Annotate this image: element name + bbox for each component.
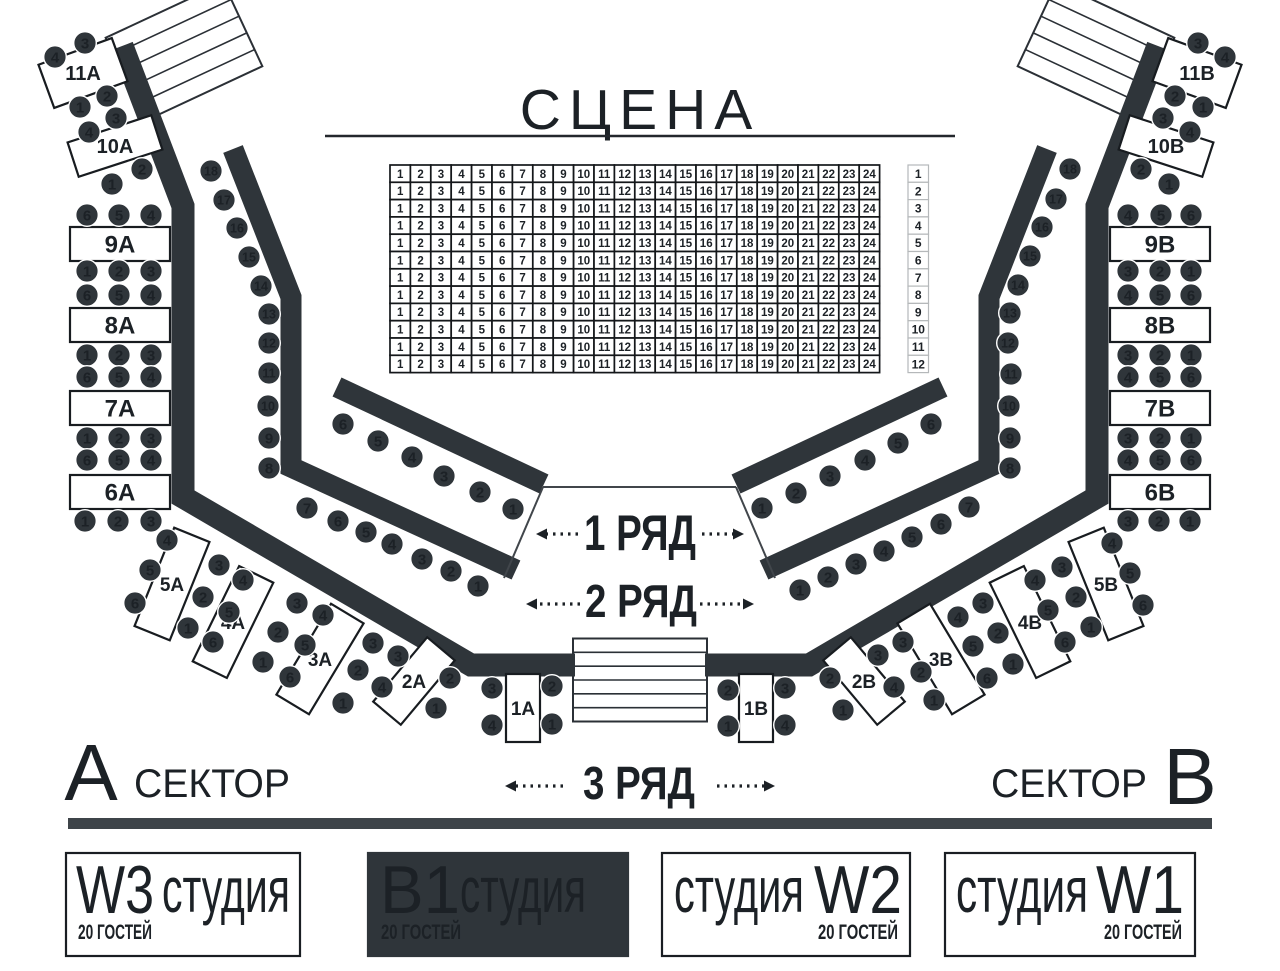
seat-row1_right-4[interactable]: 4 bbox=[854, 449, 877, 472]
stage-grid-seat-number: 13 bbox=[639, 186, 652, 198]
seat-number: 1 bbox=[474, 579, 482, 596]
seat-11B-3[interactable]: 3 bbox=[1187, 32, 1210, 55]
studio-W3[interactable]: W3студия20 ГОСТЕЙ bbox=[66, 852, 300, 956]
seat-number: 3 bbox=[440, 469, 448, 486]
seat-3B-1[interactable]: 1 bbox=[923, 689, 946, 712]
stage-grid-seat-number: 8 bbox=[540, 255, 547, 267]
seat-number: 18 bbox=[204, 165, 218, 179]
seat-aisle_left-18[interactable]: 18 bbox=[200, 160, 223, 183]
block-11A[interactable]: 11A4312 bbox=[38, 32, 127, 119]
stage-grid-seat-number: 1 bbox=[397, 273, 404, 285]
seat-aisle_left-9[interactable]: 9 bbox=[258, 427, 281, 450]
block-5B[interactable]: 5B321456 bbox=[1051, 528, 1155, 641]
seat-number: 4 bbox=[51, 50, 60, 67]
stage-grid-seat-number: 23 bbox=[843, 238, 856, 250]
seat-number: 2 bbox=[917, 665, 925, 682]
seat-7A-1[interactable]: 1 bbox=[76, 427, 99, 450]
seat-2B-1[interactable]: 1 bbox=[832, 699, 855, 722]
seat-10B-4[interactable]: 4 bbox=[1179, 121, 1202, 144]
block-label: 6B bbox=[1145, 480, 1176, 507]
seat-10A-3[interactable]: 3 bbox=[105, 107, 128, 130]
seat-3B-2[interactable]: 2 bbox=[910, 661, 933, 684]
row-marker: 1 РЯД bbox=[536, 505, 744, 561]
stage-grid-seat-number: 14 bbox=[659, 221, 672, 233]
block-8B[interactable]: 8B456321 bbox=[1110, 284, 1210, 367]
seat-number: 17 bbox=[1049, 193, 1063, 207]
seat-5B-2[interactable]: 2 bbox=[1065, 586, 1088, 609]
stage-grid-seat-number: 9 bbox=[560, 169, 566, 181]
seat-3B-6[interactable]: 6 bbox=[976, 667, 999, 690]
seat-8A-5[interactable]: 5 bbox=[108, 284, 131, 307]
block-6A[interactable]: 6A654123 bbox=[70, 449, 170, 533]
seat-4B-6[interactable]: 6 bbox=[1054, 631, 1077, 654]
block-9A[interactable]: 9A654123 bbox=[70, 204, 170, 283]
seat-number: 6 bbox=[1187, 288, 1195, 305]
arrow-head-icon bbox=[764, 781, 775, 792]
stage-grid-seat-number: 15 bbox=[679, 359, 692, 371]
seat-row2_right-7[interactable]: 7 bbox=[958, 496, 981, 519]
stage-grid-seat-number: 16 bbox=[700, 273, 713, 285]
seat-4A-4[interactable]: 4 bbox=[232, 569, 255, 592]
seat-row1_left-6[interactable]: 6 bbox=[332, 413, 355, 436]
seat-5A-5[interactable]: 5 bbox=[139, 559, 162, 582]
block-6B[interactable]: 6B456321 bbox=[1110, 449, 1210, 533]
seat-row2_left-3[interactable]: 3 bbox=[411, 548, 434, 571]
seat-number: 1 bbox=[339, 696, 347, 713]
seat-6B-3[interactable]: 3 bbox=[1117, 510, 1140, 533]
seat-5A-4[interactable]: 4 bbox=[156, 529, 179, 552]
seat-8A-1[interactable]: 1 bbox=[76, 344, 99, 367]
stage-grid-seat-number: 14 bbox=[659, 169, 672, 181]
seat-number: 1 bbox=[509, 502, 517, 519]
seat-1A-3[interactable]: 3 bbox=[481, 677, 504, 700]
seat-row2_left-1[interactable]: 1 bbox=[467, 575, 490, 598]
seat-4B-4[interactable]: 4 bbox=[1024, 569, 1047, 592]
seat-number: 13 bbox=[1003, 307, 1017, 321]
stage-grid-seat-number: 11 bbox=[598, 359, 611, 371]
stage-grid-seat-number: 20 bbox=[781, 186, 794, 198]
seat-aisle_right-14[interactable]: 14 bbox=[1007, 274, 1030, 297]
block-label: 1A bbox=[511, 699, 536, 720]
stage-grid-row-number: 6 bbox=[915, 253, 922, 267]
studio-W1[interactable]: W1студия20 ГОСТЕЙ bbox=[945, 852, 1195, 956]
seat-number: 16 bbox=[1035, 221, 1049, 235]
block-3B[interactable]: 3B321456 bbox=[892, 604, 999, 714]
seat-row2_left-2[interactable]: 2 bbox=[440, 560, 463, 583]
seat-7A-5[interactable]: 5 bbox=[108, 366, 131, 389]
seat-number: 6 bbox=[209, 635, 217, 652]
seat-9B-3[interactable]: 3 bbox=[1117, 260, 1140, 283]
seat-aisle_left-11[interactable]: 11 bbox=[258, 362, 281, 385]
seat-number: 3 bbox=[369, 636, 377, 653]
stage-grid-seat-number: 15 bbox=[679, 221, 692, 233]
seat-6A-6[interactable]: 6 bbox=[76, 449, 99, 472]
seat-4B-2[interactable]: 2 bbox=[987, 622, 1010, 645]
seat-number: 1 bbox=[83, 264, 91, 281]
seat-8A-2[interactable]: 2 bbox=[108, 344, 131, 367]
block-9B[interactable]: 9B456321 bbox=[1110, 204, 1210, 283]
seat-number: 1 bbox=[1087, 620, 1095, 637]
seat-4A-5[interactable]: 5 bbox=[218, 601, 241, 624]
seat-11A-1[interactable]: 1 bbox=[69, 96, 92, 119]
seat-11B-2[interactable]: 2 bbox=[1164, 85, 1187, 108]
seat-number: 7 bbox=[965, 500, 973, 517]
seat-2B-4[interactable]: 4 bbox=[883, 676, 906, 699]
seat-row2_right-6[interactable]: 6 bbox=[930, 513, 953, 536]
seat-6A-3[interactable]: 3 bbox=[140, 510, 163, 533]
seat-aisle_right-9[interactable]: 9 bbox=[999, 427, 1022, 450]
seat-1B-1[interactable]: 1 bbox=[717, 715, 740, 738]
seat-6A-1[interactable]: 1 bbox=[74, 510, 97, 533]
stage-grid-seat-number: 6 bbox=[499, 307, 505, 319]
seat-3A-3[interactable]: 3 bbox=[362, 632, 385, 655]
seat-row2_left-6[interactable]: 6 bbox=[327, 510, 350, 533]
stage-grid-seat-number: 14 bbox=[659, 255, 672, 267]
stage-grid-seat-number: 19 bbox=[761, 342, 774, 354]
stage-grid-seat-number: 23 bbox=[843, 290, 856, 302]
stage-grid-seat-number: 8 bbox=[540, 203, 547, 215]
seat-number: 8 bbox=[1006, 461, 1014, 478]
seat-11A-2[interactable]: 2 bbox=[96, 85, 119, 108]
seat-number: 1 bbox=[839, 703, 847, 720]
block-8A[interactable]: 8A654123 bbox=[70, 284, 170, 367]
seat-3A-4[interactable]: 4 bbox=[312, 604, 335, 627]
seat-number: 1 bbox=[1187, 348, 1195, 365]
stage-grid-seat-number: 8 bbox=[540, 186, 547, 198]
seat-1B-2[interactable]: 2 bbox=[717, 679, 740, 702]
seat-row1_right-1[interactable]: 1 bbox=[751, 497, 774, 520]
seat-number: 3 bbox=[874, 648, 882, 665]
seat-row1_left-5[interactable]: 5 bbox=[367, 430, 390, 453]
seat-6B-5[interactable]: 5 bbox=[1149, 449, 1172, 472]
studio-W2[interactable]: W2студия20 ГОСТЕЙ bbox=[662, 852, 910, 956]
stage-grid-seat-number: 4 bbox=[458, 359, 465, 371]
seat-1A-1[interactable]: 1 bbox=[541, 713, 564, 736]
seat-6B-6[interactable]: 6 bbox=[1180, 449, 1203, 472]
stage-grid-seat-number: 21 bbox=[802, 359, 815, 371]
seat-row1_right-3[interactable]: 3 bbox=[819, 465, 842, 488]
stage-grid-seat-number: 5 bbox=[479, 324, 486, 336]
seat-8A-6[interactable]: 6 bbox=[76, 284, 99, 307]
seat-9A-6[interactable]: 6 bbox=[76, 204, 99, 227]
seat-7B-5[interactable]: 5 bbox=[1149, 366, 1172, 389]
stage-grid-seat-number: 4 bbox=[458, 186, 465, 198]
stage-grid-seat-number: 10 bbox=[577, 273, 590, 285]
stage-grid-seat-number: 23 bbox=[843, 186, 856, 198]
stage-grid-seat-number: 24 bbox=[863, 359, 876, 371]
seat-row2_left-5[interactable]: 5 bbox=[355, 521, 378, 544]
stage-grid-seat-number: 24 bbox=[863, 307, 876, 319]
stage-grid-seat-number: 4 bbox=[458, 324, 465, 336]
block-label: 7B bbox=[1145, 396, 1176, 423]
seat-row2_right-2[interactable]: 2 bbox=[817, 566, 840, 589]
seat-3B-3[interactable]: 3 bbox=[892, 631, 915, 654]
seat-4A-6[interactable]: 6 bbox=[202, 631, 225, 654]
seat-9B-6[interactable]: 6 bbox=[1180, 204, 1203, 227]
seat-aisle_left-10[interactable]: 10 bbox=[257, 395, 280, 418]
seat-3B-4[interactable]: 4 bbox=[947, 606, 970, 629]
seat-2A-2[interactable]: 2 bbox=[439, 667, 462, 690]
seat-10B-2[interactable]: 2 bbox=[1130, 158, 1153, 181]
block-11B[interactable]: 11B3421 bbox=[1152, 32, 1241, 119]
block-4B[interactable]: 4B321456 bbox=[972, 566, 1077, 678]
stage-grid-seat-number: 4 bbox=[458, 221, 465, 233]
stage-grid-seat-number: 21 bbox=[802, 221, 815, 233]
block-10A[interactable]: 10A4312 bbox=[68, 107, 163, 196]
seat-6A-4[interactable]: 4 bbox=[140, 449, 163, 472]
seat-aisle_right-11[interactable]: 11 bbox=[1000, 363, 1023, 386]
seat-2B-2[interactable]: 2 bbox=[819, 667, 842, 690]
seat-4B-3[interactable]: 3 bbox=[972, 592, 995, 615]
seat-1A-2[interactable]: 2 bbox=[541, 675, 564, 698]
stage-grid-seat-number: 11 bbox=[598, 238, 611, 250]
stage-grid-seat-number: 20 bbox=[781, 203, 794, 215]
stage-grid-row-number: 5 bbox=[915, 236, 922, 250]
seat-5A-1[interactable]: 1 bbox=[177, 617, 200, 640]
seat-number: 4 bbox=[147, 288, 156, 305]
seat-8B-6[interactable]: 6 bbox=[1180, 284, 1203, 307]
seat-number: 3 bbox=[1124, 431, 1132, 448]
seat-number: 4 bbox=[1221, 50, 1230, 67]
studio-word: студия bbox=[460, 854, 586, 926]
seat-8A-4[interactable]: 4 bbox=[140, 284, 163, 307]
seat-5B-5[interactable]: 5 bbox=[1119, 562, 1142, 585]
stage-grid-seat-number: 6 bbox=[499, 255, 505, 267]
block-label: 5A bbox=[160, 575, 185, 596]
stage-grid-seat-number: 6 bbox=[499, 238, 505, 250]
seat-number: 6 bbox=[83, 288, 91, 305]
seat-5B-4[interactable]: 4 bbox=[1101, 532, 1124, 555]
seat-7A-3[interactable]: 3 bbox=[140, 427, 163, 450]
stage-grid-seat-number: 21 bbox=[802, 342, 815, 354]
seat-2B-3[interactable]: 3 bbox=[867, 644, 890, 667]
seat-8B-5[interactable]: 5 bbox=[1149, 284, 1172, 307]
seat-3A-6[interactable]: 6 bbox=[279, 666, 302, 689]
seat-number: 3 bbox=[293, 596, 301, 613]
seat-number: 1 bbox=[1199, 100, 1207, 117]
seat-5B-6[interactable]: 6 bbox=[1132, 594, 1155, 617]
seat-number: 5 bbox=[115, 288, 123, 305]
seat-9B-5[interactable]: 5 bbox=[1150, 204, 1173, 227]
seat-aisle_left-13[interactable]: 13 bbox=[258, 303, 281, 326]
seat-7B-4[interactable]: 4 bbox=[1117, 366, 1140, 389]
seat-1B-4[interactable]: 4 bbox=[774, 714, 797, 737]
seat-6A-2[interactable]: 2 bbox=[107, 510, 130, 533]
seat-row2_left-7[interactable]: 7 bbox=[296, 497, 319, 520]
stage-grid-seat-number: 22 bbox=[822, 186, 835, 198]
seat-4A-3[interactable]: 3 bbox=[286, 592, 309, 615]
stage-grid-seat-number: 15 bbox=[679, 203, 692, 215]
block-1A[interactable]: 1A3421 bbox=[481, 674, 564, 742]
stage-grid-seat-number: 13 bbox=[639, 221, 652, 233]
block-1B[interactable]: 1B2134 bbox=[717, 674, 797, 742]
stage-grid-seat-number: 5 bbox=[479, 290, 486, 302]
seat-9A-4[interactable]: 4 bbox=[140, 204, 163, 227]
seat-row2_right-5[interactable]: 5 bbox=[901, 526, 924, 549]
seat-5B-3[interactable]: 3 bbox=[1051, 556, 1074, 579]
seat-5A-2[interactable]: 2 bbox=[192, 586, 215, 609]
stage-grid-seat-number: 5 bbox=[479, 186, 486, 198]
block-7B[interactable]: 7B456321 bbox=[1110, 366, 1210, 450]
stage-grid-seat-number: 9 bbox=[560, 238, 566, 250]
seat-1B-3[interactable]: 3 bbox=[774, 677, 797, 700]
seat-aisle_right-10[interactable]: 10 bbox=[998, 395, 1021, 418]
seat-7A-4[interactable]: 4 bbox=[140, 366, 163, 389]
seat-10B-1[interactable]: 1 bbox=[1158, 173, 1181, 196]
stage-grid-seat-number: 3 bbox=[438, 307, 444, 319]
seat-10A-1[interactable]: 1 bbox=[101, 173, 124, 196]
stage-grid-seat-number: 19 bbox=[761, 221, 774, 233]
seat-2A-1[interactable]: 1 bbox=[425, 697, 448, 720]
block-7A[interactable]: 7A654123 bbox=[70, 366, 170, 450]
stage-grid-seat-number: 20 bbox=[781, 255, 794, 267]
stage-grid-seat-number: 4 bbox=[458, 169, 465, 181]
seat-3A-5[interactable]: 5 bbox=[294, 634, 317, 657]
seat-row1_left-1[interactable]: 1 bbox=[502, 498, 525, 521]
seat-2A-4[interactable]: 4 bbox=[371, 676, 394, 699]
seat-9A-3[interactable]: 3 bbox=[140, 260, 163, 283]
studio-B1[interactable]: B1студия20 ГОСТЕЙ bbox=[368, 852, 628, 956]
seat-8A-3[interactable]: 3 bbox=[140, 344, 163, 367]
arrow-head-icon bbox=[743, 599, 754, 610]
seat-row1_left-2[interactable]: 2 bbox=[469, 481, 492, 504]
seat-10A-4[interactable]: 4 bbox=[78, 121, 101, 144]
seat-8B-1[interactable]: 1 bbox=[1180, 344, 1203, 367]
seat-3B-5[interactable]: 5 bbox=[962, 635, 985, 658]
stage-grid-seat-number: 20 bbox=[781, 238, 794, 250]
seat-9B-2[interactable]: 2 bbox=[1149, 260, 1172, 283]
seat-4A-1[interactable]: 1 bbox=[252, 651, 275, 674]
seat-1A-4[interactable]: 4 bbox=[481, 714, 504, 737]
seat-number: 2 bbox=[103, 89, 111, 106]
stage-grid-seat-number: 16 bbox=[700, 359, 713, 371]
seat-5A-3[interactable]: 3 bbox=[208, 554, 231, 577]
seat-row2_right-3[interactable]: 3 bbox=[845, 553, 868, 576]
seat-8B-2[interactable]: 2 bbox=[1149, 344, 1172, 367]
stage-grid-seat-number: 14 bbox=[659, 307, 672, 319]
seat-number: 3 bbox=[1058, 560, 1066, 577]
seat-9B-1[interactable]: 1 bbox=[1180, 260, 1203, 283]
seat-aisle_right-8[interactable]: 8 bbox=[999, 457, 1022, 480]
stage-grid-seat-number: 22 bbox=[822, 221, 835, 233]
studio-code: W1 bbox=[1096, 852, 1184, 928]
seat-7B-1[interactable]: 1 bbox=[1180, 427, 1203, 450]
seat-9A-2[interactable]: 2 bbox=[108, 260, 131, 283]
seat-11A-4[interactable]: 4 bbox=[44, 46, 67, 69]
seat-5B-1[interactable]: 1 bbox=[1080, 616, 1103, 639]
seat-row1_right-2[interactable]: 2 bbox=[785, 482, 808, 505]
seat-aisle_right-12[interactable]: 12 bbox=[997, 332, 1020, 355]
stage-grid-seat-number: 12 bbox=[618, 238, 631, 250]
seat-row1_right-5[interactable]: 5 bbox=[887, 432, 910, 455]
stage-grid-seat-number: 7 bbox=[519, 290, 525, 302]
seat-7B-3[interactable]: 3 bbox=[1117, 427, 1140, 450]
seat-10B-3[interactable]: 3 bbox=[1152, 107, 1175, 130]
seat-number: 11 bbox=[1004, 368, 1017, 382]
seat-4B-1[interactable]: 1 bbox=[1002, 653, 1025, 676]
seat-7B-2[interactable]: 2 bbox=[1149, 427, 1172, 450]
seat-11B-4[interactable]: 4 bbox=[1214, 46, 1237, 69]
seat-aisle_right-18[interactable]: 18 bbox=[1059, 158, 1082, 181]
stage-grid-seat-number: 11 bbox=[598, 342, 611, 354]
seat-6B-4[interactable]: 4 bbox=[1117, 449, 1140, 472]
seat-number: 1 bbox=[108, 177, 116, 194]
stage-grid-seat-number: 4 bbox=[458, 307, 465, 319]
stage-grid-seat-number: 8 bbox=[540, 342, 547, 354]
block-10B[interactable]: 10B3421 bbox=[1119, 107, 1214, 196]
seat-aisle_left-17[interactable]: 17 bbox=[213, 189, 236, 212]
seat-7A-2[interactable]: 2 bbox=[108, 427, 131, 450]
seat-row2_right-1[interactable]: 1 bbox=[789, 579, 812, 602]
stage-grid-seat-number: 1 bbox=[397, 255, 404, 267]
seat-6A-5[interactable]: 5 bbox=[108, 449, 131, 472]
block-4A[interactable]: 4A456321 bbox=[193, 566, 309, 678]
seat-10A-2[interactable]: 2 bbox=[131, 158, 154, 181]
seat-4B-5[interactable]: 5 bbox=[1037, 599, 1060, 622]
stage-grid-seat-number: 17 bbox=[720, 255, 733, 267]
seat-8B-3[interactable]: 3 bbox=[1117, 344, 1140, 367]
stage-grid-seat-number: 16 bbox=[700, 290, 713, 302]
seat-9B-4[interactable]: 4 bbox=[1117, 204, 1140, 227]
block-3A[interactable]: 3A456321 bbox=[276, 604, 384, 715]
seat-number: 4 bbox=[954, 610, 963, 627]
seat-aisle_left-12[interactable]: 12 bbox=[258, 332, 281, 355]
seat-9A-1[interactable]: 1 bbox=[76, 260, 99, 283]
seat-aisle_right-15[interactable]: 15 bbox=[1019, 245, 1042, 268]
stage-grid-seat-number: 13 bbox=[639, 307, 652, 319]
seat-number: 2 bbox=[824, 570, 832, 587]
seat-row2_right-4[interactable]: 4 bbox=[873, 540, 896, 563]
seat-aisle_left-8[interactable]: 8 bbox=[258, 457, 281, 480]
block-label: 8B bbox=[1145, 313, 1176, 340]
seat-row1_right-6[interactable]: 6 bbox=[920, 413, 943, 436]
stage-grid-seat-number: 5 bbox=[479, 203, 486, 215]
stage-grid-seat-number: 17 bbox=[720, 221, 733, 233]
seat-row1_left-4[interactable]: 4 bbox=[401, 446, 424, 469]
seat-row2_left-4[interactable]: 4 bbox=[381, 533, 404, 556]
seat-2A-3[interactable]: 3 bbox=[387, 645, 410, 668]
seat-6B-1[interactable]: 1 bbox=[1179, 510, 1202, 533]
seat-11A-3[interactable]: 3 bbox=[74, 32, 97, 55]
seat-11B-1[interactable]: 1 bbox=[1192, 96, 1215, 119]
seat-aisle_left-15[interactable]: 15 bbox=[238, 246, 261, 269]
seat-6B-2[interactable]: 2 bbox=[1148, 510, 1171, 533]
stage-grid-seat-number: 8 bbox=[540, 273, 547, 285]
seat-aisle_left-16[interactable]: 16 bbox=[226, 217, 249, 240]
seat-aisle_right-13[interactable]: 13 bbox=[999, 302, 1022, 325]
seat-9A-5[interactable]: 5 bbox=[108, 204, 131, 227]
seat-3A-2[interactable]: 2 bbox=[347, 659, 370, 682]
seat-7A-6[interactable]: 6 bbox=[76, 366, 99, 389]
seat-4A-2[interactable]: 2 bbox=[267, 621, 290, 644]
seat-8B-4[interactable]: 4 bbox=[1117, 284, 1140, 307]
stage-grid-seat-number: 20 bbox=[781, 273, 794, 285]
stage-grid-seat-number: 8 bbox=[540, 324, 547, 336]
seat-5A-6[interactable]: 6 bbox=[124, 592, 147, 615]
seat-3A-1[interactable]: 1 bbox=[332, 692, 355, 715]
stage-grid-seat-number: 20 bbox=[781, 290, 794, 302]
seat-aisle_left-14[interactable]: 14 bbox=[250, 275, 273, 298]
seat-aisle_right-17[interactable]: 17 bbox=[1045, 188, 1068, 211]
seat-number: 1 bbox=[184, 621, 192, 638]
seat-row1_left-3[interactable]: 3 bbox=[433, 465, 456, 488]
stage-grid-seat-number: 19 bbox=[761, 186, 774, 198]
seat-7B-6[interactable]: 6 bbox=[1180, 366, 1203, 389]
stage-grid-seat-number: 16 bbox=[700, 203, 713, 215]
seat-number: 4 bbox=[319, 608, 328, 625]
stage-grid-seat-number: 20 bbox=[781, 221, 794, 233]
seat-aisle_right-16[interactable]: 16 bbox=[1031, 216, 1054, 239]
